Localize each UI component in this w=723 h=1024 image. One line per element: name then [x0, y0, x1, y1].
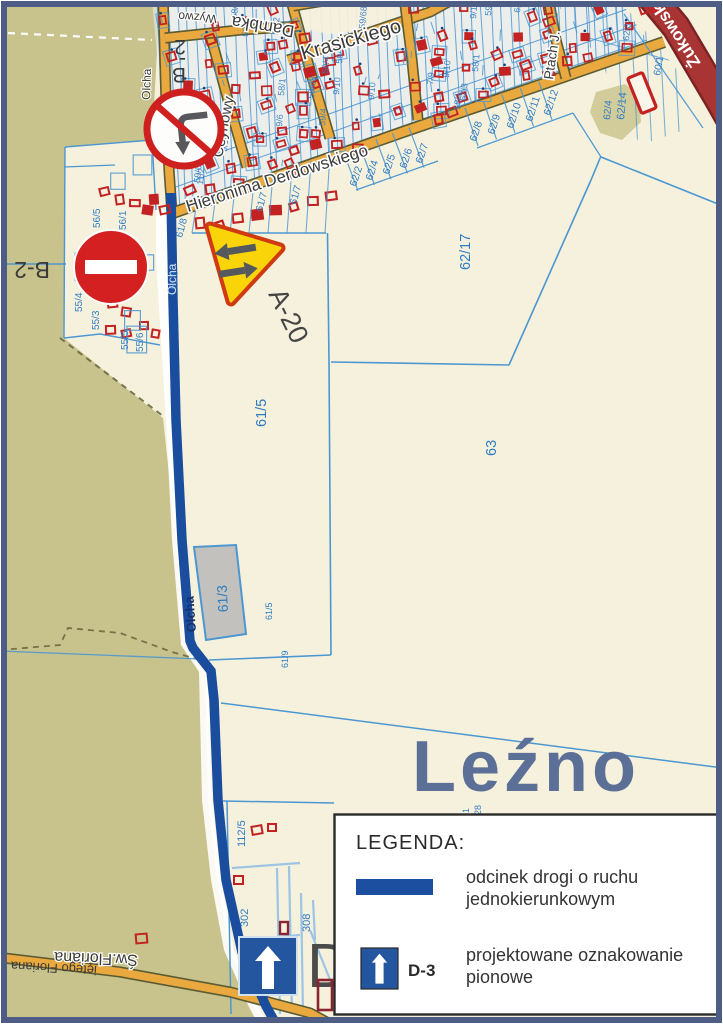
svg-text:projektowane oznakowanie: projektowane oznakowanie	[466, 945, 683, 965]
svg-text:odcinek drogi o ruchu: odcinek drogi o ruchu	[466, 867, 638, 887]
svg-text:55/3: 55/3	[91, 310, 102, 330]
svg-text:112/5: 112/5	[236, 820, 248, 847]
svg-text:302: 302	[239, 909, 251, 927]
svg-text:55/4: 55/4	[74, 292, 85, 312]
svg-text:56/5: 56/5	[92, 208, 103, 228]
svg-text:Olcha: Olcha	[139, 68, 154, 100]
svg-text:pionowe: pionowe	[466, 967, 533, 987]
svg-text:55/5: 55/5	[120, 330, 131, 350]
svg-text:58/1: 58/1	[470, 54, 481, 72]
svg-text:jednokierunkowym: jednokierunkowym	[465, 889, 615, 909]
svg-text:55/6: 55/6	[135, 332, 146, 352]
svg-text:63: 63	[484, 440, 500, 456]
svg-text:LEGENDA:: LEGENDA:	[356, 832, 465, 854]
svg-text:Olcha: Olcha	[181, 595, 199, 633]
svg-text:59/4: 59/4	[317, 108, 328, 126]
svg-text:9/10: 9/10	[331, 77, 342, 95]
svg-text:62/14: 62/14	[615, 92, 629, 120]
svg-text:61/3: 61/3	[214, 584, 231, 612]
svg-text:9/10: 9/10	[366, 82, 377, 100]
svg-text:62/17: 62/17	[458, 234, 474, 270]
svg-text:Wyzwo: Wyzwo	[177, 9, 217, 26]
svg-text:58/1: 58/1	[276, 78, 287, 96]
svg-text:Olcha: Olcha	[165, 263, 179, 295]
svg-text:62/3: 62/3	[621, 23, 632, 41]
svg-text:61/5: 61/5	[254, 399, 270, 427]
svg-text:9/6: 9/6	[274, 114, 285, 127]
svg-text:9/10: 9/10	[441, 60, 452, 78]
svg-text:56/1: 56/1	[118, 210, 129, 230]
svg-text:61/9: 61/9	[280, 650, 290, 668]
svg-text:58/1: 58/1	[452, 92, 463, 110]
svg-text:Leźno: Leźno	[412, 727, 640, 807]
svg-text:B: B	[172, 63, 186, 86]
svg-text:11/2: 11/2	[195, 168, 206, 186]
svg-text:62/4: 62/4	[602, 99, 615, 120]
svg-text:B-2: B-2	[14, 257, 50, 283]
svg-text:308: 308	[301, 914, 313, 932]
svg-text:59/68: 59/68	[306, 76, 318, 99]
svg-text:61/5: 61/5	[264, 602, 274, 620]
svg-text:D-3: D-3	[408, 961, 435, 980]
